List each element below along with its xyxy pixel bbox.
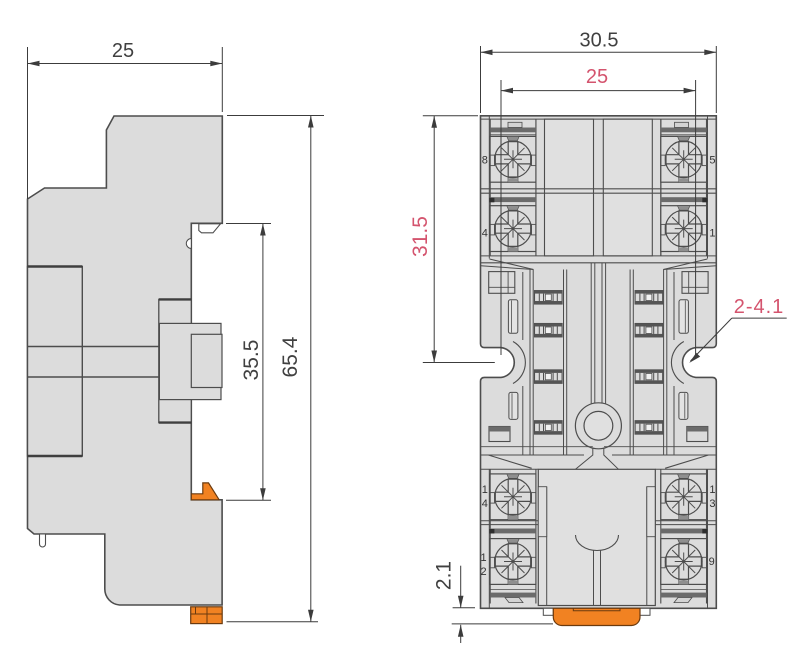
svg-text:8: 8: [482, 155, 488, 167]
svg-text:2: 2: [480, 566, 486, 578]
svg-text:2-4.1: 2-4.1: [734, 296, 785, 318]
svg-text:25: 25: [112, 40, 134, 62]
svg-text:3: 3: [709, 498, 715, 510]
svg-text:25: 25: [586, 66, 608, 88]
svg-text:35.5: 35.5: [240, 340, 263, 381]
svg-text:4: 4: [482, 498, 488, 510]
svg-text:65.4: 65.4: [279, 336, 302, 377]
svg-text:30.5: 30.5: [580, 30, 619, 52]
svg-text:31.5: 31.5: [409, 216, 432, 257]
svg-text:1: 1: [709, 484, 715, 496]
svg-text:9: 9: [709, 556, 715, 568]
svg-text:2.1: 2.1: [433, 561, 456, 590]
svg-text:1: 1: [480, 552, 486, 564]
svg-text:4: 4: [482, 228, 488, 240]
svg-text:1: 1: [709, 228, 715, 240]
svg-text:5: 5: [709, 155, 715, 167]
svg-text:1: 1: [482, 484, 488, 496]
